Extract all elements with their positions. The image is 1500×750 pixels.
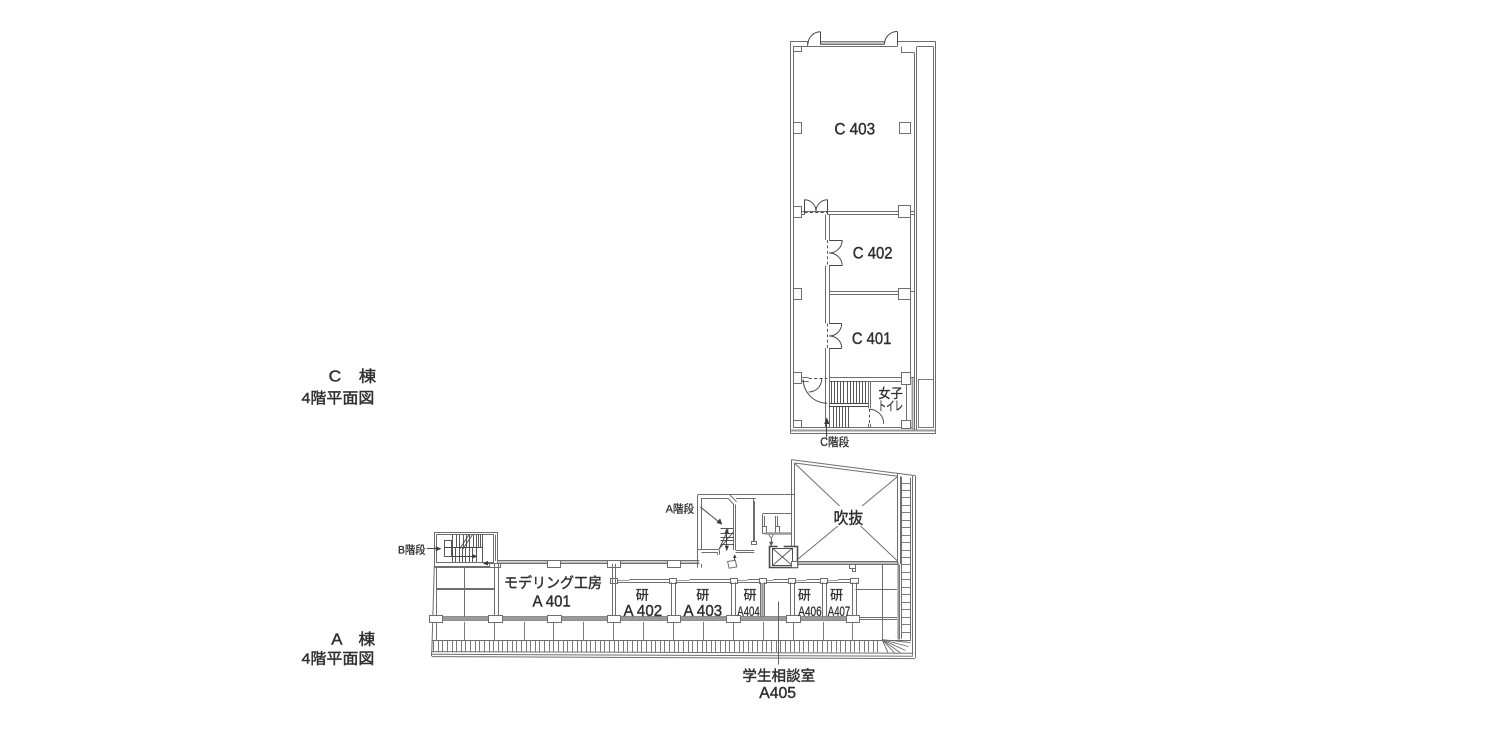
svg-text:A 402: A 402 — [624, 603, 663, 620]
svg-text:モデリング工房: モデリング工房 — [504, 574, 602, 592]
svg-text:A 403: A 403 — [684, 603, 723, 620]
svg-text:C 401: C 401 — [852, 329, 892, 348]
svg-text:4階平面図: 4階平面図 — [302, 390, 375, 407]
svg-text:研: 研 — [696, 588, 709, 603]
svg-text:4階平面図: 4階平面図 — [302, 650, 375, 667]
svg-text:研: 研 — [636, 588, 649, 603]
svg-text:研: 研 — [743, 588, 756, 603]
svg-text:A406: A406 — [798, 604, 821, 619]
svg-text:C 403: C 403 — [834, 119, 875, 138]
svg-text:C階段: C階段 — [820, 435, 849, 449]
svg-text:研: 研 — [830, 588, 843, 603]
svg-text:トイレ: トイレ — [878, 399, 903, 414]
svg-text:A404: A404 — [737, 604, 760, 619]
svg-text:B階段: B階段 — [398, 542, 426, 556]
svg-text:A階段: A階段 — [666, 502, 695, 516]
svg-text:A405: A405 — [759, 685, 796, 702]
svg-text:A 棟: A 棟 — [331, 630, 375, 648]
svg-text:吹抜: 吹抜 — [834, 509, 864, 527]
svg-text:C 棟: C 棟 — [329, 368, 377, 386]
svg-text:研: 研 — [798, 588, 811, 603]
svg-text:A 401: A 401 — [532, 593, 570, 610]
svg-text:学生相談室: 学生相談室 — [742, 668, 815, 685]
svg-text:A407: A407 — [828, 604, 850, 619]
svg-text:C 402: C 402 — [853, 244, 893, 263]
